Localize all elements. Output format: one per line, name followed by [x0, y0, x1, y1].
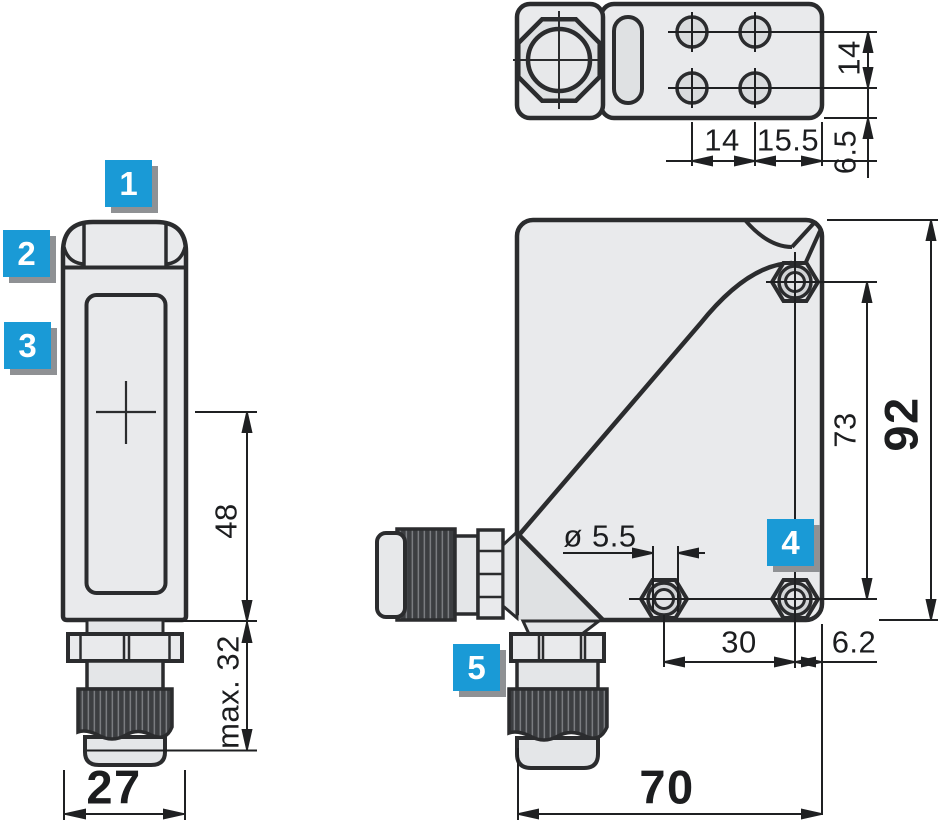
callout-1-badge: 1 [105, 160, 152, 207]
front-view [377, 220, 822, 768]
top-view [513, 4, 822, 118]
side-axis-to-bottom-label: 48 [211, 503, 242, 538]
top-edge-offset-x-label: 15.5 [757, 125, 819, 156]
top-edge-offset-y-label: 6.5 [830, 130, 861, 175]
top-hole-pitch-y-label: 14 [834, 40, 865, 75]
gland-body [87, 661, 163, 689]
callout-3-badge: 3 [4, 322, 51, 369]
side-housing-outline [63, 222, 186, 620]
side-gland-length-label: max. 32 [213, 635, 244, 749]
front-edge-offset-x-label: 6.2 [832, 627, 877, 658]
m12-connector [377, 529, 517, 620]
gland-body [517, 661, 598, 689]
callout-4-badge: 4 [767, 519, 814, 566]
gland-end-cap [517, 738, 598, 768]
m12-neck [503, 532, 517, 618]
dimensional-drawing: 27 48 max. 32 14 15.5 14 6.5 70 92 73 30… [0, 0, 940, 821]
front-cable-gland [509, 621, 607, 768]
m12-body [455, 536, 478, 614]
front-hole-pitch-y-label: 73 [830, 412, 861, 447]
callout-2-badge: 2 [3, 230, 50, 277]
m12-plug-tip [377, 533, 405, 617]
indicator-slot [614, 17, 642, 103]
gland-knurl [78, 689, 172, 739]
callout-5-badge: 5 [453, 644, 500, 691]
side-cable-gland [68, 620, 182, 765]
gland-nut [511, 634, 604, 661]
front-hole-pitch-x-label: 30 [721, 627, 756, 658]
gland-knurl [509, 689, 607, 740]
front-width-label: 70 [639, 764, 694, 811]
side-view [63, 222, 186, 765]
top-hole-pitch-x-label: 14 [704, 125, 739, 156]
gland-neck [87, 620, 163, 634]
front-height-label: 92 [878, 396, 925, 451]
side-width-label: 27 [86, 764, 141, 811]
front-hole-diameter-label: ø 5.5 [563, 521, 636, 552]
